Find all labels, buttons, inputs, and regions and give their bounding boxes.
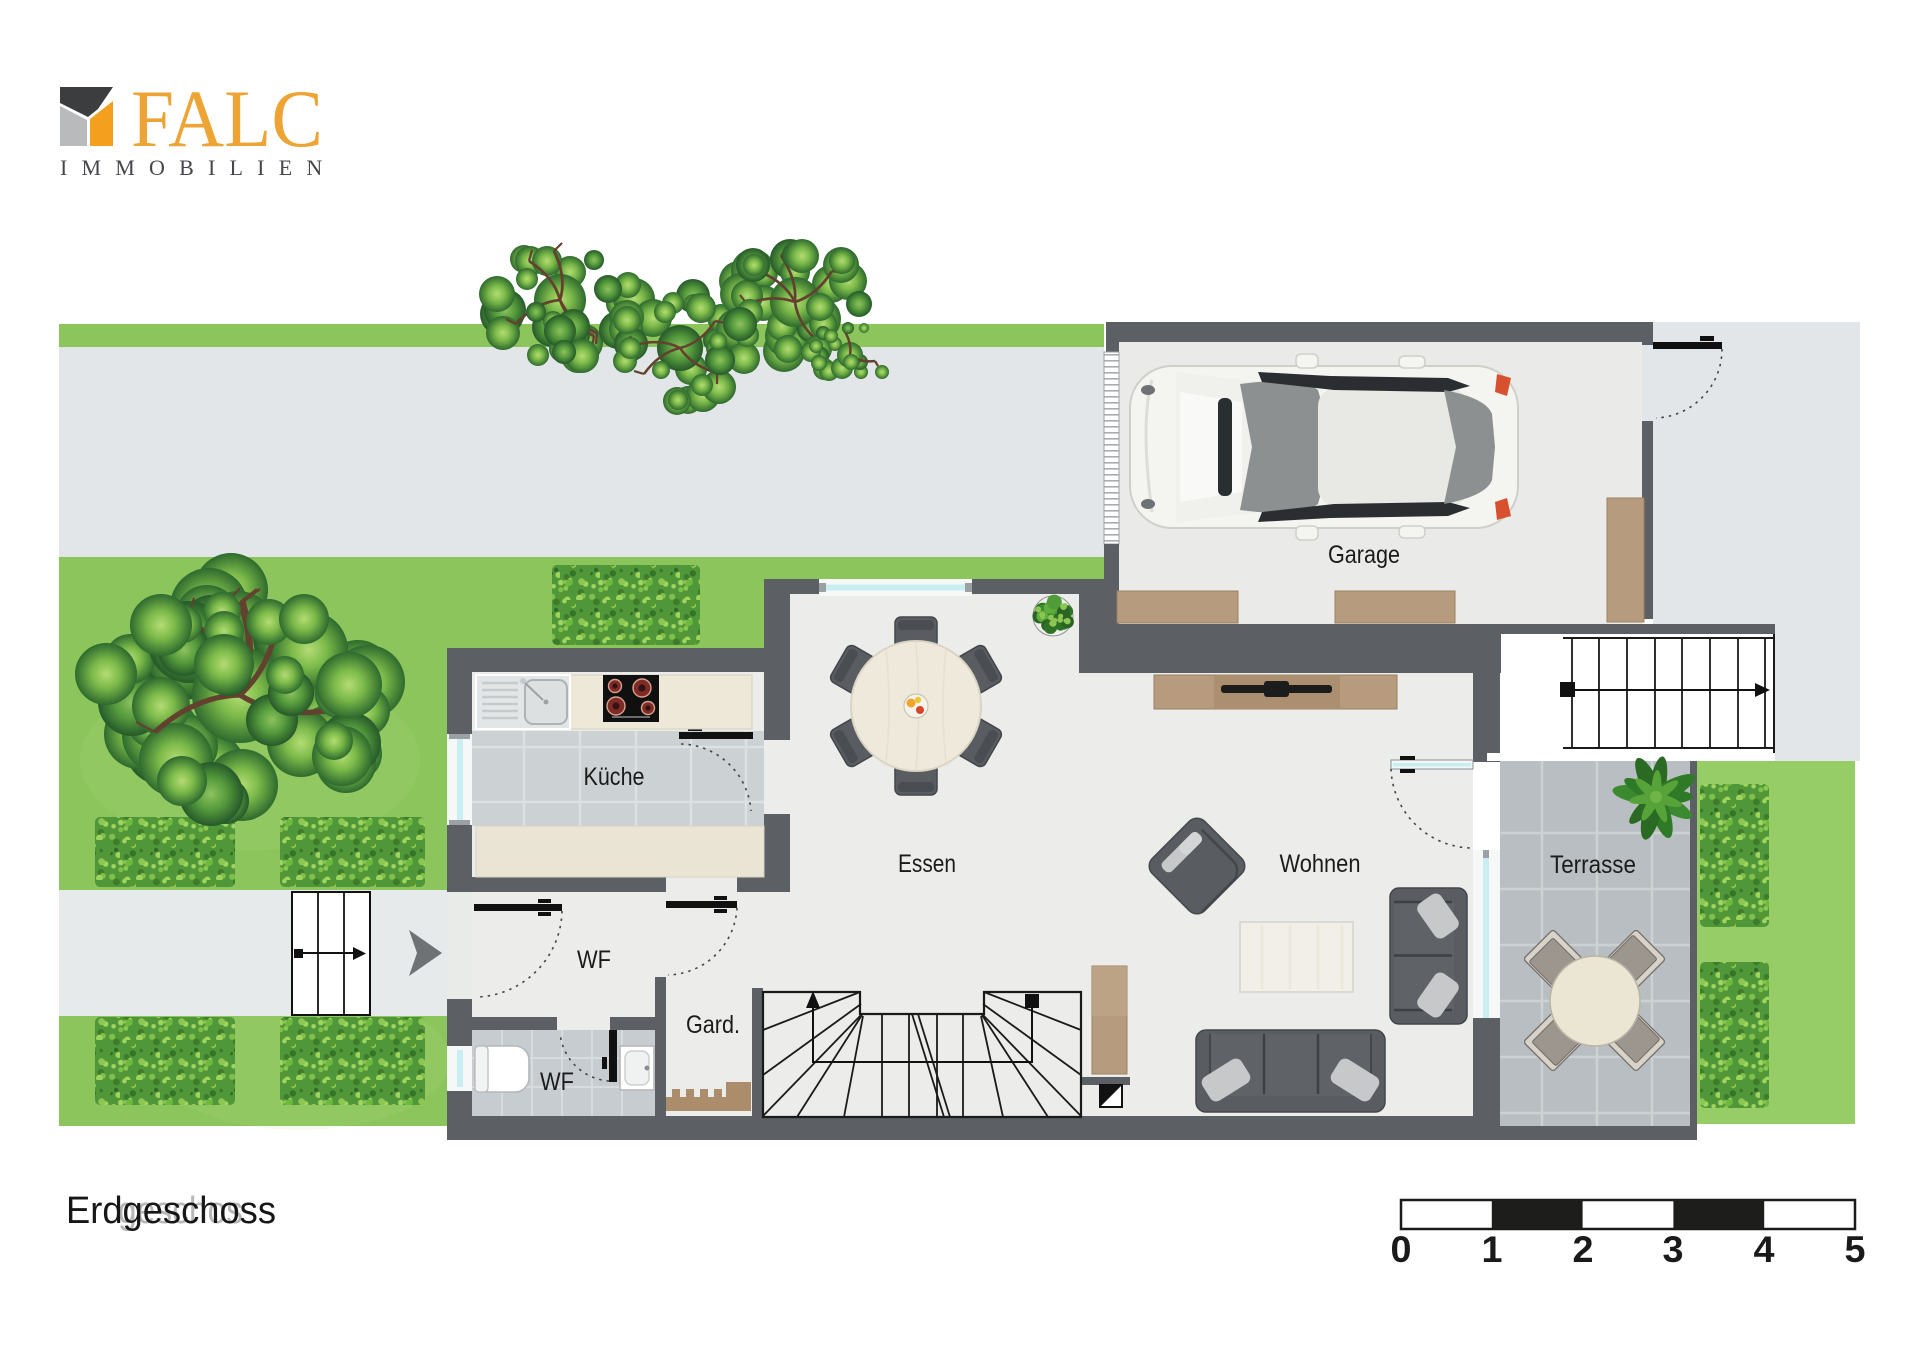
svg-text:Küche: Küche (584, 763, 645, 791)
svg-text:WF: WF (577, 946, 611, 974)
svg-text:Gard.: Gard. (686, 1011, 740, 1039)
svg-text:Terrasse: Terrasse (1550, 851, 1636, 879)
svg-text:3: 3 (1663, 1229, 1684, 1270)
svg-text:IMMOBILIEN: IMMOBILIEN (60, 155, 336, 180)
svg-text:WF: WF (540, 1068, 574, 1096)
svg-text:Essen: Essen (898, 850, 956, 878)
svg-text:1: 1 (1482, 1229, 1503, 1270)
svg-text:0: 0 (1391, 1229, 1412, 1270)
svg-text:FALC: FALC (131, 73, 323, 164)
svg-text:Garage: Garage (1328, 541, 1400, 569)
svg-text:2: 2 (1573, 1229, 1594, 1270)
svg-text:Erdgeschoss: Erdgeschoss (66, 1190, 276, 1232)
svg-text:5: 5 (1845, 1229, 1866, 1270)
svg-text:Wohnen: Wohnen (1280, 850, 1361, 878)
svg-text:4: 4 (1754, 1229, 1775, 1270)
